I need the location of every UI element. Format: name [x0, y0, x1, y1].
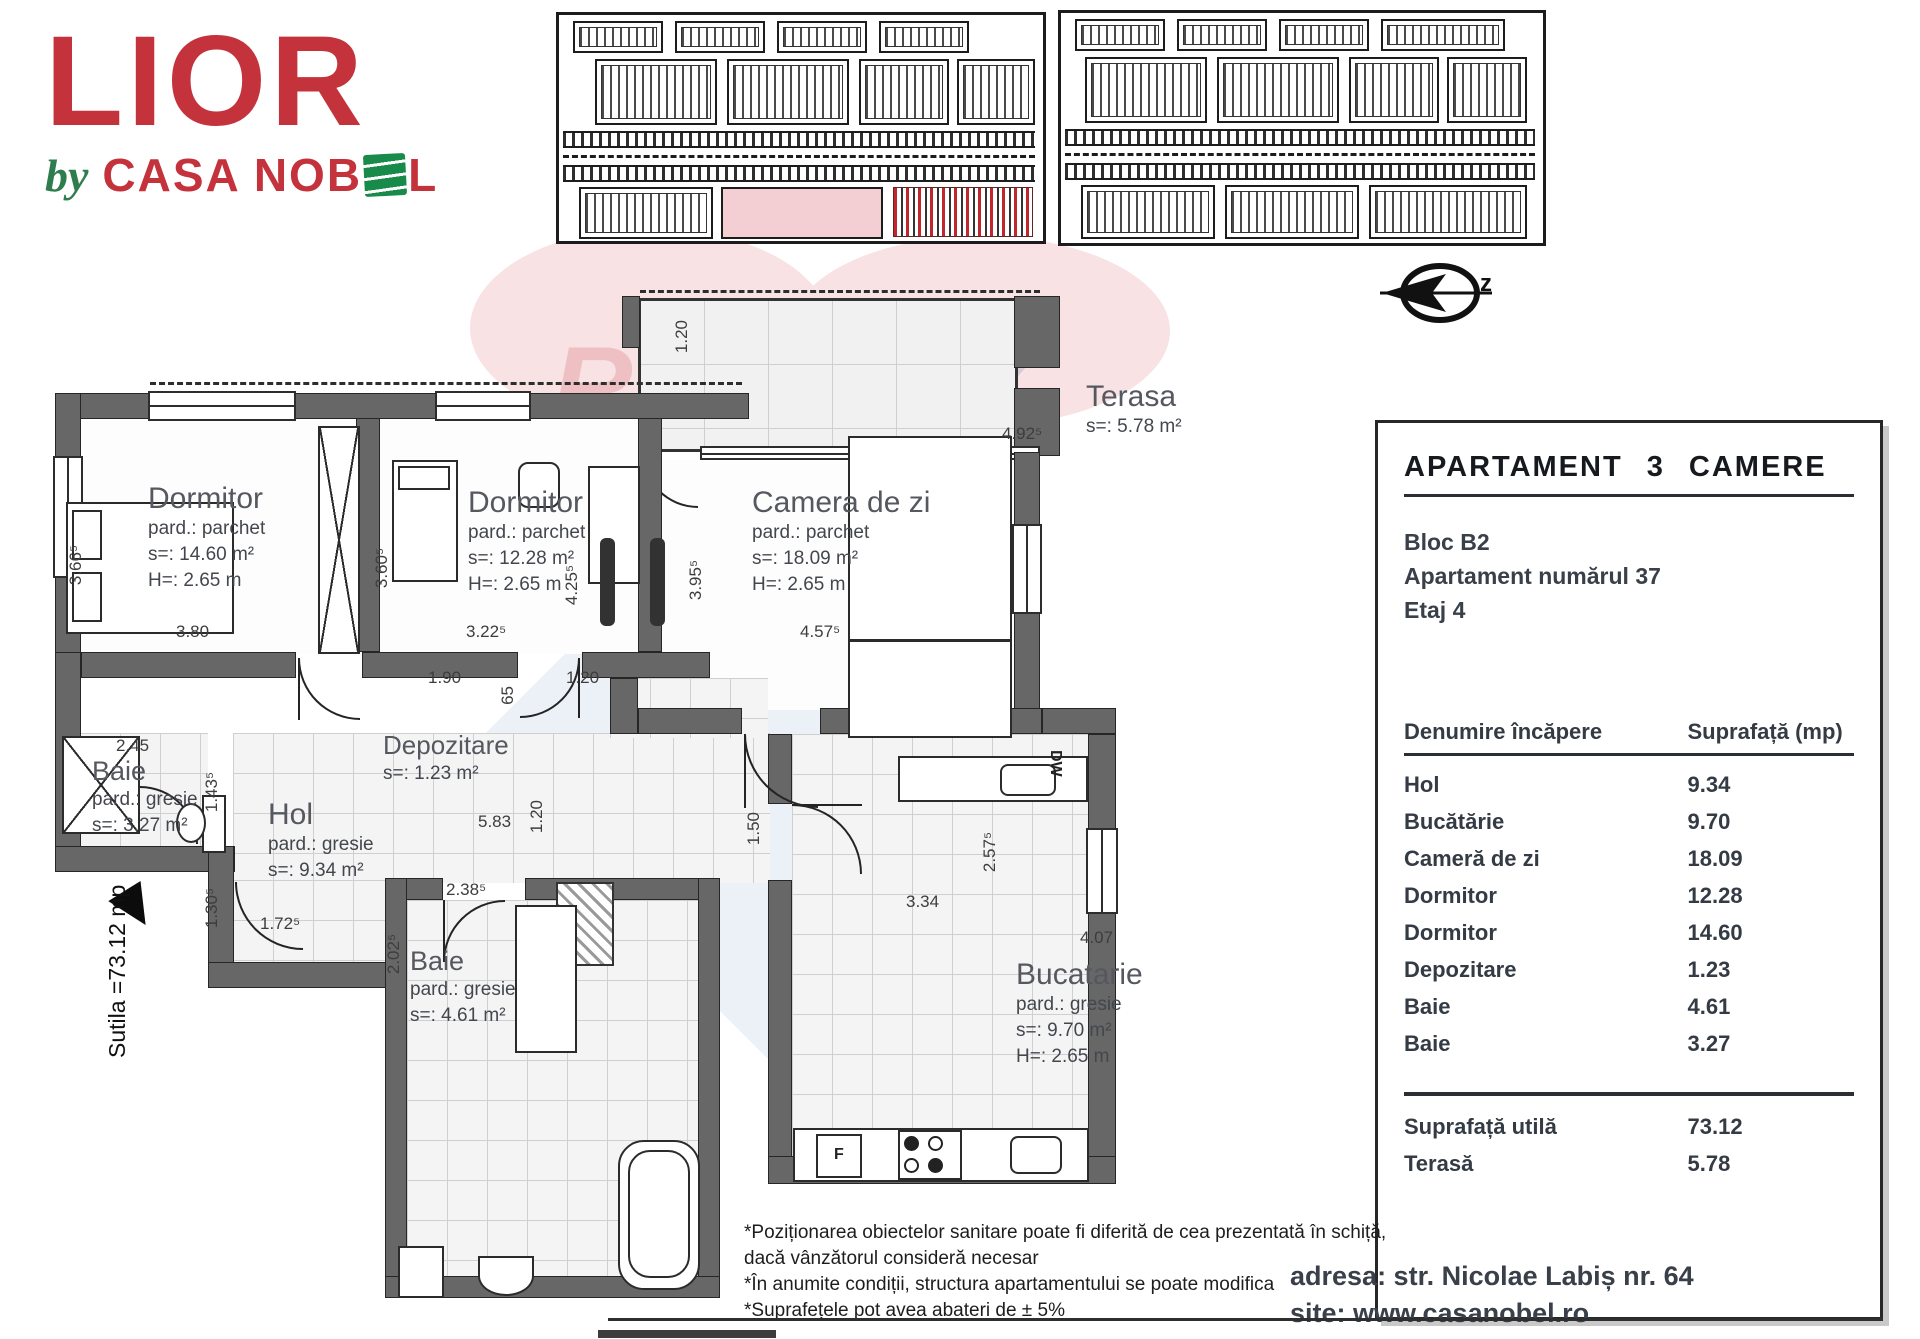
dimension: 1.43⁵	[202, 772, 222, 812]
table-header-area: Suprafață (mp)	[1688, 719, 1855, 745]
table-row: Depozitare1.23	[1404, 951, 1854, 988]
table-row: Dormitor14.60	[1404, 914, 1854, 951]
table-total-row: Suprafață utilă73.12	[1404, 1108, 1854, 1145]
table-total-row: Terasă5.78	[1404, 1145, 1854, 1182]
table-row: Baie3.27	[1404, 1025, 1854, 1062]
door-leaf	[578, 658, 580, 718]
divider	[1404, 753, 1854, 756]
wall	[525, 878, 720, 900]
siteplan-road	[1065, 129, 1535, 146]
door-leaf	[792, 804, 862, 806]
apartment-number-label: Apartament numărul 37	[1404, 559, 1854, 593]
floor-label: Etaj 4	[1404, 593, 1854, 627]
frame-line	[598, 1330, 776, 1338]
window	[148, 391, 296, 421]
compass-letter: z	[1480, 270, 1492, 298]
siteplan-block	[1279, 19, 1369, 51]
siteplan-building	[1225, 185, 1359, 239]
door-leaf	[298, 658, 300, 720]
siteplan-road-centerline	[563, 155, 1035, 158]
wall	[698, 878, 720, 1298]
stove-burner-icon	[904, 1136, 919, 1151]
apartment-info-panel: APARTAMENT 3 CAMERE Bloc B2 Apartament n…	[1375, 420, 1883, 1320]
tv-unit-icon	[650, 538, 665, 626]
page: LIOR by CASA NOB L RE/MAX	[0, 0, 1920, 1339]
siteplan-building-red-detail	[893, 187, 1033, 237]
siteplan-left-panel	[556, 12, 1046, 244]
dimension: 3.66⁵	[66, 545, 86, 585]
divider	[1404, 1092, 1854, 1096]
window	[435, 391, 531, 421]
siteplan-building-highlighted	[721, 187, 883, 239]
usable-area-side-label: Sutila =73.12 mp	[104, 878, 131, 1058]
siteplan-building	[727, 59, 849, 125]
dimension: 2.02⁵	[384, 934, 404, 974]
wardrobe-icon	[318, 426, 360, 654]
wall	[582, 652, 710, 678]
siteplan-block	[777, 21, 867, 53]
siteplan-building	[579, 187, 713, 239]
dimension: 3.22⁵	[466, 622, 506, 642]
dimension: 2.57⁵	[980, 832, 1000, 872]
room-label-baie-2: Baie pard.: gresie s=: 4.61 m²	[410, 946, 516, 1029]
dimension: 2.45	[116, 736, 149, 756]
toilet-icon	[398, 1246, 444, 1298]
stove-burner-icon	[904, 1158, 919, 1173]
dimension: 2.38⁵	[446, 880, 486, 900]
dimension: 3.60⁵	[372, 548, 392, 588]
wall	[81, 652, 296, 678]
room-label-bucatarie: Bucatarie pard.: gresie s=: 9.70 m² H=: …	[1016, 958, 1143, 1070]
room-label-camera-de-zi: Camera de zi pard.: parchet s=: 18.09 m²…	[752, 486, 930, 598]
dimension: 4.57⁵	[800, 622, 840, 642]
stove-burner-icon	[928, 1158, 943, 1173]
window	[1086, 828, 1118, 914]
brand-name: LIOR	[45, 18, 438, 146]
room-label-depozitare: Depozitare s=: 1.23 m²	[383, 730, 509, 787]
siteplan-block	[879, 21, 969, 53]
sink-icon	[1010, 1136, 1062, 1174]
siteplan-building	[1081, 185, 1215, 239]
book-stack-icon	[363, 153, 407, 197]
table-row: Bucătărie9.70	[1404, 803, 1854, 840]
footnote-line: dacă vânzătorul consideră necesar	[744, 1246, 1404, 1272]
siteplan-right-panel	[1058, 10, 1546, 246]
dimension: 3.95⁵	[686, 560, 706, 600]
dimension: 1.72⁵	[260, 914, 300, 934]
window	[1012, 524, 1042, 614]
brand-company: CASA NOB L	[102, 148, 438, 202]
sofa-chaise-icon	[848, 640, 1012, 738]
table-row: Baie4.61	[1404, 988, 1854, 1025]
siteplan-road	[1065, 163, 1535, 180]
wall	[638, 708, 742, 734]
dimension: 1.30⁵	[202, 888, 222, 928]
pillow-icon	[398, 466, 450, 490]
dimension: 65	[498, 686, 518, 705]
siteplan-building	[1085, 57, 1207, 123]
dimension: 4.92⁵	[1002, 424, 1042, 444]
dishwasher-label: DW	[1046, 750, 1064, 777]
radiator-icon	[515, 905, 577, 1053]
footnote-line: *Poziționarea obiectelor sanitare poate …	[744, 1220, 1404, 1246]
siteplan-road-centerline	[1065, 153, 1535, 156]
frame-line	[608, 1318, 1883, 1321]
siteplan-building	[1447, 57, 1527, 123]
brand-by: by	[45, 149, 88, 202]
wall	[1014, 296, 1060, 368]
wall	[208, 962, 390, 988]
dimension: 4.07	[1080, 928, 1113, 948]
dimension: 1.20	[527, 800, 547, 833]
brand-company-pre: CASA NOB	[102, 148, 362, 202]
dimension: 5.83	[478, 812, 511, 832]
dimension: 1.20	[566, 668, 599, 688]
door-leaf	[744, 734, 746, 808]
siteplan-building	[1349, 57, 1439, 123]
block-label: Bloc B2	[1404, 525, 1854, 559]
siteplan-building	[1217, 57, 1339, 123]
table-row: Hol9.34	[1404, 766, 1854, 803]
siteplan-building	[957, 59, 1035, 125]
bathtub-inner-icon	[628, 1150, 690, 1278]
siteplan-block	[1381, 19, 1505, 51]
table-header-room: Denumire încăpere	[1404, 719, 1688, 745]
brand-logo: LIOR by CASA NOB L	[45, 18, 438, 202]
panel-title: APARTAMENT 3 CAMERE	[1404, 451, 1854, 484]
dimension: 1.50	[744, 812, 764, 845]
room-label-terasa: Terasa s=: 5.78 m²	[1086, 380, 1182, 440]
dimension: 3.80	[176, 622, 209, 642]
siteplan-road	[563, 131, 1035, 148]
table-row: Dormitor12.28	[1404, 877, 1854, 914]
siteplan-road	[563, 165, 1035, 182]
dimension: 3.34	[906, 892, 939, 912]
siteplan-building	[859, 59, 949, 125]
dimension: 4.25⁵	[562, 565, 582, 605]
wall	[1042, 708, 1116, 734]
door-arc	[298, 658, 360, 720]
table-row: Cameră de zi18.09	[1404, 840, 1854, 877]
siteplan-block	[675, 21, 765, 53]
dimension: 1.20	[672, 320, 692, 353]
footnotes: *Poziționarea obiectelor sanitare poate …	[744, 1220, 1404, 1324]
room-label-baie-1: Baie pard.: gresie s=: 3.27 m²	[92, 756, 198, 839]
wall	[768, 880, 792, 1180]
room-area-table: Denumire încăpere Suprafață (mp) Hol9.34…	[1404, 719, 1854, 1182]
tv-unit-icon	[600, 538, 615, 626]
wall	[610, 678, 638, 734]
footnote-line: *În anumite condiții, structura apartame…	[744, 1272, 1404, 1298]
siteplan-building	[1369, 185, 1527, 239]
divider	[1404, 494, 1854, 497]
north-compass-icon: z	[1380, 248, 1498, 338]
dashed-boundary	[640, 290, 1040, 293]
brand-company-post: L	[408, 148, 438, 202]
siteplan-block	[1075, 19, 1165, 51]
dimension: 1.90	[428, 668, 461, 688]
room-label-hol: Hol pard.: gresie s=: 9.34 m²	[268, 798, 374, 884]
siteplan-block	[573, 21, 663, 53]
room-label-dormitor-1: Dormitor pard.: parchet s=: 14.60 m² H=:…	[148, 482, 265, 594]
washbasin-icon	[478, 1256, 534, 1296]
terrace-rail	[638, 298, 1018, 452]
siteplan-building	[595, 59, 717, 125]
stove-burner-icon	[928, 1136, 943, 1151]
wall	[622, 296, 640, 348]
siteplan-block	[1177, 19, 1267, 51]
fridge-label: F	[834, 1146, 844, 1164]
